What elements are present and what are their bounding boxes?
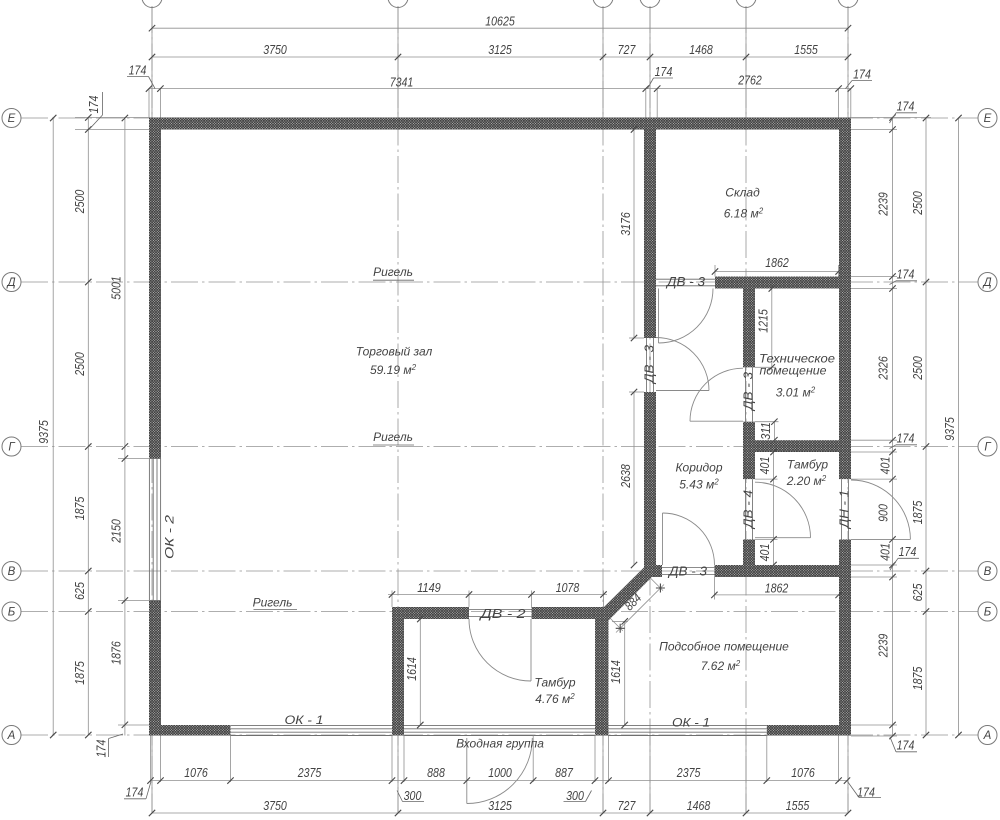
svg-text:1862: 1862 — [765, 582, 789, 596]
svg-text:3750: 3750 — [263, 43, 287, 57]
svg-text:174: 174 — [95, 740, 109, 758]
svg-text:Входная группа: Входная группа — [456, 737, 544, 751]
svg-text:9375: 9375 — [943, 417, 957, 441]
svg-text:Тамбур: Тамбур — [534, 676, 575, 690]
svg-text:2500: 2500 — [73, 352, 87, 376]
svg-text:ДН - 1: ДН - 1 — [838, 490, 852, 530]
svg-text:1076: 1076 — [791, 766, 815, 780]
svg-text:ДВ - 3: ДВ - 3 — [742, 372, 756, 412]
svg-text:ОК - 2: ОК - 2 — [163, 515, 177, 559]
svg-text:3125: 3125 — [488, 43, 512, 57]
svg-text:174: 174 — [899, 545, 917, 559]
svg-text:2500: 2500 — [911, 356, 925, 380]
svg-text:174: 174 — [897, 432, 915, 446]
svg-text:Е: Е — [8, 113, 16, 125]
svg-text:2150: 2150 — [110, 519, 124, 543]
svg-text:1468: 1468 — [689, 43, 713, 57]
svg-text:2.20 м2: 2.20 м2 — [786, 474, 827, 488]
svg-text:Д: Д — [981, 277, 991, 289]
svg-text:174: 174 — [857, 786, 875, 800]
svg-text:Торговый зал: Торговый зал — [356, 345, 433, 359]
svg-text:888: 888 — [427, 766, 445, 780]
svg-text:174: 174 — [129, 64, 147, 78]
svg-text:Тамбур: Тамбур — [787, 458, 828, 472]
svg-text:Г: Г — [984, 442, 991, 454]
svg-text:2500: 2500 — [911, 191, 925, 215]
svg-text:1614: 1614 — [609, 660, 623, 684]
svg-text:А: А — [7, 730, 16, 742]
svg-text:ОК - 1: ОК - 1 — [285, 713, 324, 727]
svg-text:Б: Б — [984, 607, 992, 619]
svg-text:2638: 2638 — [619, 464, 633, 488]
svg-text:1876: 1876 — [110, 641, 124, 665]
svg-text:174: 174 — [897, 739, 915, 753]
svg-text:7341: 7341 — [390, 76, 414, 90]
svg-text:1468: 1468 — [687, 799, 711, 813]
svg-text:1614: 1614 — [405, 657, 419, 681]
svg-text:В: В — [8, 566, 16, 578]
svg-text:Коридор: Коридор — [675, 461, 722, 475]
svg-text:Подсобное помещение: Подсобное помещение — [659, 640, 789, 654]
svg-text:1875: 1875 — [911, 667, 925, 691]
svg-text:Г: Г — [8, 442, 15, 454]
svg-text:1076: 1076 — [184, 766, 208, 780]
svg-text:727: 727 — [618, 43, 637, 57]
svg-text:1000: 1000 — [488, 766, 512, 780]
svg-text:Ригель: Ригель — [253, 596, 293, 610]
svg-text:1875: 1875 — [73, 661, 87, 685]
svg-text:Б: Б — [8, 607, 16, 619]
svg-text:1862: 1862 — [765, 256, 789, 270]
svg-text:174: 174 — [853, 68, 871, 82]
svg-text:Ригель: Ригель — [373, 265, 413, 279]
svg-text:2375: 2375 — [676, 766, 700, 780]
svg-text:10625: 10625 — [485, 15, 515, 29]
svg-text:625: 625 — [73, 582, 87, 600]
svg-text:ДВ - 2: ДВ - 2 — [478, 607, 526, 621]
svg-text:Склад: Склад — [725, 186, 760, 200]
svg-text:401: 401 — [758, 457, 772, 475]
svg-text:ОК - 1: ОК - 1 — [672, 716, 710, 730]
svg-text:Е: Е — [984, 113, 992, 125]
svg-text:2375: 2375 — [297, 766, 321, 780]
svg-text:7.62 м2: 7.62 м2 — [701, 659, 741, 673]
svg-text:300: 300 — [404, 789, 422, 803]
svg-text:1875: 1875 — [73, 497, 87, 521]
svg-text:ДВ - 3: ДВ - 3 — [665, 275, 705, 289]
svg-text:В: В — [984, 566, 992, 578]
svg-text:59.19 м2: 59.19 м2 — [370, 363, 417, 377]
svg-text:887: 887 — [555, 766, 574, 780]
svg-text:625: 625 — [911, 584, 925, 602]
svg-text:А: А — [983, 730, 992, 742]
svg-text:1149: 1149 — [417, 581, 441, 595]
svg-text:2239: 2239 — [877, 192, 891, 216]
svg-text:помещение: помещение — [760, 364, 827, 378]
svg-text:401: 401 — [879, 457, 893, 475]
svg-text:Ригель: Ригель — [373, 430, 413, 444]
svg-text:174: 174 — [897, 268, 915, 282]
svg-text:5001: 5001 — [110, 276, 124, 300]
svg-text:3750: 3750 — [263, 799, 287, 813]
svg-text:900: 900 — [877, 504, 891, 522]
svg-text:174: 174 — [897, 100, 915, 114]
svg-text:311: 311 — [759, 422, 773, 440]
svg-text:401: 401 — [758, 544, 772, 562]
svg-text:3176: 3176 — [619, 212, 633, 236]
svg-text:ДВ - 3: ДВ - 3 — [643, 345, 657, 385]
svg-text:1555: 1555 — [786, 799, 810, 813]
svg-text:2762: 2762 — [737, 74, 761, 88]
svg-text:9375: 9375 — [37, 420, 51, 444]
svg-text:ДВ - 3: ДВ - 3 — [667, 565, 707, 579]
svg-text:5.43 м2: 5.43 м2 — [679, 478, 719, 492]
svg-text:6.18 м2: 6.18 м2 — [724, 207, 764, 221]
svg-text:ДВ - 4: ДВ - 4 — [742, 490, 756, 530]
svg-text:1078: 1078 — [556, 581, 580, 595]
svg-text:1555: 1555 — [794, 43, 818, 57]
svg-text:401: 401 — [879, 543, 893, 561]
svg-text:174: 174 — [126, 786, 144, 800]
svg-text:2326: 2326 — [877, 356, 891, 380]
svg-text:2500: 2500 — [73, 190, 87, 214]
svg-text:Д: Д — [5, 277, 15, 289]
svg-text:300: 300 — [566, 789, 584, 803]
svg-text:174: 174 — [655, 65, 673, 79]
svg-text:3125: 3125 — [488, 799, 512, 813]
svg-text:727: 727 — [618, 799, 637, 813]
svg-text:2239: 2239 — [877, 634, 891, 658]
svg-text:1875: 1875 — [911, 501, 925, 525]
svg-text:4.76 м2: 4.76 м2 — [535, 692, 575, 706]
svg-text:1215: 1215 — [757, 309, 771, 333]
svg-text:174: 174 — [87, 96, 101, 114]
svg-text:3.01 м2: 3.01 м2 — [776, 386, 816, 400]
